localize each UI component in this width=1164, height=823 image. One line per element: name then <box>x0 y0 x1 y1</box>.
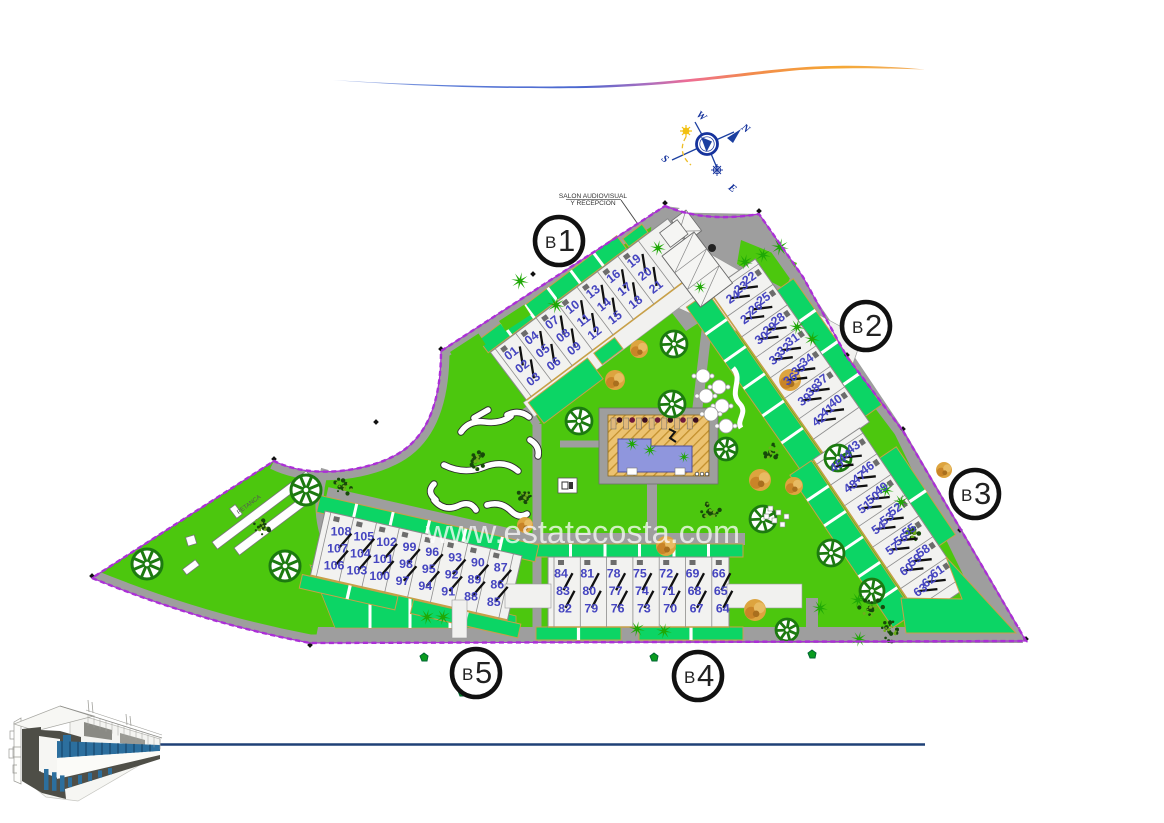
svg-text:90: 90 <box>471 556 485 570</box>
svg-text:71: 71 <box>661 584 675 598</box>
svg-text:75: 75 <box>633 566 647 580</box>
svg-text:76: 76 <box>611 601 625 615</box>
svg-text:81: 81 <box>580 566 594 580</box>
svg-text:69: 69 <box>686 566 700 580</box>
svg-text:94: 94 <box>418 579 432 593</box>
svg-text:95: 95 <box>422 562 436 576</box>
svg-text:77: 77 <box>609 584 623 598</box>
svg-text:4: 4 <box>697 658 714 693</box>
svg-text:1: 1 <box>558 223 575 258</box>
svg-text:67: 67 <box>690 601 704 615</box>
svg-text:99: 99 <box>403 540 417 554</box>
svg-text:86: 86 <box>490 578 504 592</box>
svg-text:73: 73 <box>637 601 651 615</box>
svg-text:www.estatecosta.com: www.estatecosta.com <box>425 514 740 550</box>
svg-text:B: B <box>684 668 695 687</box>
svg-text:78: 78 <box>607 566 621 580</box>
svg-text:72: 72 <box>659 566 673 580</box>
svg-text:87: 87 <box>494 561 508 575</box>
svg-text:68: 68 <box>688 584 702 598</box>
svg-text:B: B <box>462 665 473 684</box>
svg-text:84: 84 <box>554 566 568 580</box>
svg-text:B: B <box>852 318 863 337</box>
svg-text:89: 89 <box>468 573 482 587</box>
svg-text:3: 3 <box>974 476 991 511</box>
svg-text:SALON AUDIOVISUAL: SALON AUDIOVISUAL <box>559 193 627 200</box>
svg-text:B: B <box>545 233 556 252</box>
svg-text:79: 79 <box>584 601 598 615</box>
svg-text:70: 70 <box>663 601 677 615</box>
svg-text:83: 83 <box>556 584 570 598</box>
svg-text:92: 92 <box>445 567 459 581</box>
svg-text:2: 2 <box>865 308 882 343</box>
svg-text:103: 103 <box>347 564 368 578</box>
svg-text:97: 97 <box>396 574 410 588</box>
svg-text:100: 100 <box>369 569 390 583</box>
svg-text:88: 88 <box>464 590 478 604</box>
svg-text:98: 98 <box>399 557 413 571</box>
svg-text:85: 85 <box>487 595 501 609</box>
svg-text:82: 82 <box>558 601 572 615</box>
svg-text:91: 91 <box>441 584 455 598</box>
svg-text:74: 74 <box>635 584 649 598</box>
svg-text:106: 106 <box>324 559 345 573</box>
svg-text:Y RECEPCION: Y RECEPCION <box>570 200 616 207</box>
svg-text:93: 93 <box>448 550 462 564</box>
svg-text:64: 64 <box>716 601 730 615</box>
svg-text:65: 65 <box>714 584 728 598</box>
svg-text:B: B <box>961 486 972 505</box>
svg-text:80: 80 <box>582 584 596 598</box>
svg-text:5: 5 <box>475 655 492 690</box>
svg-text:66: 66 <box>712 566 726 580</box>
